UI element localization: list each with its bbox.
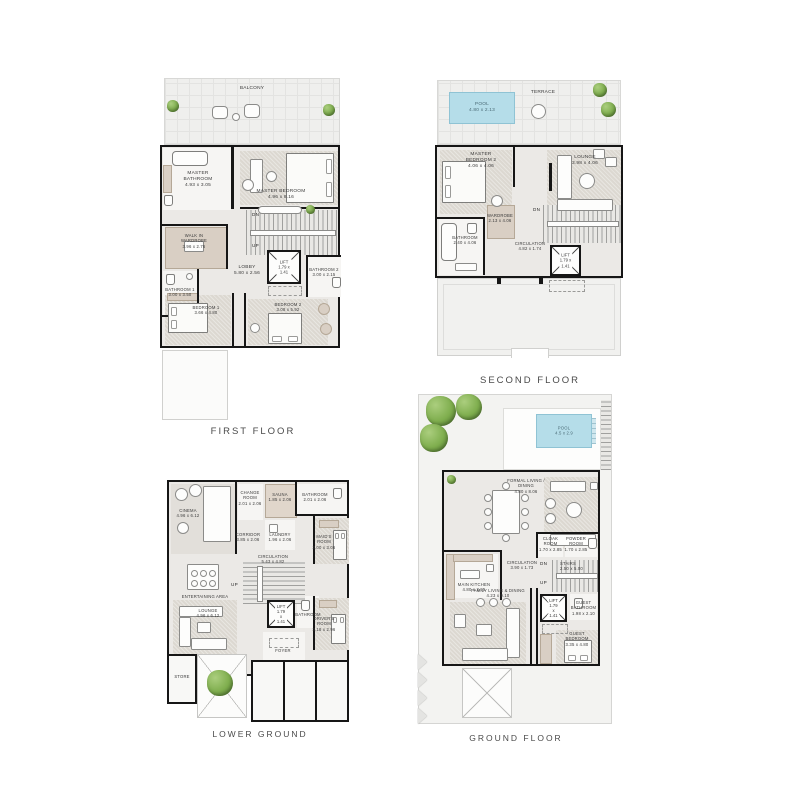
wall (244, 293, 246, 347)
chair (200, 570, 207, 577)
plan-first-floor: BALCONY MASTER BATHROOM 4.93 x 3.05 MAST… (160, 78, 346, 424)
balcony-label: BALCONY (210, 86, 294, 92)
chair (502, 598, 511, 607)
circulation-label: CIRCULATION 5.43 x 4.82 (253, 554, 293, 565)
console (590, 482, 598, 490)
wall-stub (497, 276, 501, 284)
chair (191, 580, 198, 587)
wall (437, 217, 485, 219)
wall (297, 514, 347, 516)
toilet (467, 223, 477, 234)
stairs-label: STAIRS 2.50 x 5.00 (560, 561, 590, 572)
stairs-dn-label: DN (252, 212, 259, 217)
wardrobe-strip (540, 634, 552, 664)
toilet (301, 600, 310, 611)
wardrobe-label: WARDROBE 2.13 x 4.06 (485, 213, 515, 224)
wall-stub (539, 276, 543, 284)
coffee-table (579, 173, 595, 189)
chair (489, 598, 498, 607)
roof-notch (511, 348, 549, 358)
chair (521, 522, 529, 530)
cloak-room-label: CLOAK ROOM 1.70 x 2.85 (539, 536, 562, 552)
corridor-label: CORRIDOR 3.85 x 2.06 (233, 532, 263, 543)
light-well (251, 660, 349, 722)
family-living-label: FAMILY LIVING & DINING 4.23 x 9.10 (466, 588, 530, 599)
hedge (418, 654, 427, 670)
circulation-label: CIRCULATION 3.90 x 1.73 (504, 560, 540, 571)
patio (462, 668, 512, 718)
wardrobe-strip (319, 600, 337, 608)
terrace-outline (162, 350, 228, 420)
pool: POOL 4.80 x 2.13 (449, 92, 515, 124)
guest-bedroom-label: GUEST BEDROOM 3.35 x 4.80 (560, 631, 594, 647)
chair (209, 570, 216, 577)
second-floor-title: SECOND FLOOR (435, 375, 625, 386)
round-table (531, 104, 546, 119)
mat (269, 638, 299, 648)
lift: LIFT 1.79 x 1.41 (267, 250, 301, 284)
sofa-seat (462, 648, 508, 661)
chair (484, 494, 492, 502)
master-bedroom2-label: MASTER BEDROOM 2 4.06 x 4.06 (459, 152, 503, 171)
wall (513, 147, 515, 187)
entry-mat (268, 286, 302, 296)
sofa-seat (191, 638, 227, 650)
lift-label: LIFT 1.79 x 1.41 (559, 252, 573, 269)
plan-ground-floor: POOL 4.5 x 2.9 FORMAL LIVING / DINING 4.… (418, 392, 614, 730)
terrace-label: TERRACE (521, 90, 565, 96)
stair-rail (257, 566, 263, 602)
toilet (166, 274, 175, 285)
toilet (588, 538, 597, 549)
stairs-dn-label: DN (540, 561, 547, 566)
cinema-chair (189, 484, 202, 497)
pool-label: POOL 4.5 x 2.9 (537, 426, 591, 437)
plan-lower-ground: CINEMA 4.96 x 6.12 CHANGE ROOM 2.01 x 2.… (167, 478, 353, 730)
wall (536, 532, 538, 558)
bathroom-label: BATHROOM 2.40 x 4.06 (449, 235, 481, 246)
stairs-up-label: UP (231, 582, 238, 587)
toilet (164, 195, 173, 206)
entertaining-label: ENTERTAINING AREA (177, 594, 233, 599)
floorplan-sheet: { "titles": { "first": "FIRST FLOOR", "s… (0, 0, 800, 800)
chair (476, 598, 485, 607)
cinema-label: CINEMA 4.96 x 6.12 (171, 508, 205, 519)
stair-rail (556, 573, 598, 579)
dining-table (492, 490, 520, 534)
lounge-chair (244, 104, 260, 118)
chair (209, 580, 216, 587)
wardrobe-strip (319, 520, 339, 528)
wall (530, 588, 532, 664)
sink (186, 273, 193, 280)
lift-label: LIFT 1.79 x 1.41 (277, 259, 292, 276)
stair-rail (547, 221, 619, 227)
first-floor-title: FIRST FLOOR (160, 426, 346, 437)
chair (521, 494, 529, 502)
second-floor-block: MASTER BEDROOM 2 4.06 x 4.06 LOUNGE 3.98… (435, 145, 623, 278)
hedge (418, 690, 427, 706)
courtyard-tree (207, 670, 233, 696)
maids-room-label: MAID'S ROOM 3.00 x 3.06 (311, 534, 337, 550)
wall (232, 293, 234, 347)
chair (484, 522, 492, 530)
plant-icon (593, 83, 607, 97)
sauna-label: SAUNA 1.85 x 2.06 (265, 492, 295, 503)
foyer-label: FOYER (269, 648, 297, 653)
chair (200, 580, 207, 587)
plant-icon (447, 475, 456, 484)
bedroom1-label: BEDROOM 1 3.66 x 4.80 (184, 305, 228, 316)
tree (426, 396, 456, 426)
hedge (418, 708, 427, 724)
round-table (177, 522, 189, 534)
stair-rail (250, 230, 336, 236)
master-bedroom-label: MASTER BEDROOM 4.96 x 8.16 (250, 189, 312, 201)
sofa (550, 481, 586, 492)
change-room-label: CHANGE ROOM 2.01 x 2.06 (237, 490, 263, 506)
bathroom1-label: BATHROOM 1 3.00 x 3.50 (164, 287, 196, 298)
wall (231, 147, 234, 209)
kitchen-island (460, 570, 480, 579)
tree (456, 394, 482, 420)
chair (502, 534, 510, 542)
bench (258, 206, 302, 214)
wardrobe-label: WALK IN WARDROBE 3.96 x 2.76 (174, 233, 214, 249)
ground-floor-block: FORMAL LIVING / DINING 4.80 x 8.06 MAIN … (442, 470, 600, 666)
lift: LIFT 1.79 x 1.41 (550, 245, 581, 276)
light-well-divider (283, 662, 285, 720)
wall (444, 550, 500, 552)
wall (536, 588, 538, 664)
formal-living-label: FORMAL LIVING / DINING 4.80 x 8.06 (502, 478, 550, 494)
toilet (333, 488, 342, 499)
vanity-counter (163, 165, 172, 193)
hedge (418, 672, 427, 688)
bathtub (172, 151, 208, 166)
tree (420, 424, 448, 452)
light-well-divider (315, 662, 317, 720)
ground-floor-title: GROUND FLOOR (418, 733, 614, 743)
master-bathroom-label: MASTER BATHROOM 4.93 x 3.05 (176, 171, 220, 190)
sofa-side (179, 617, 191, 647)
coffee-table (197, 622, 211, 633)
bathroom-top-label: BATHROOM 2.01 x 2.06 (299, 492, 331, 503)
appliance (486, 564, 494, 572)
wall (549, 163, 552, 191)
lift: LIFT 1.79 x 1.41 (267, 600, 295, 628)
plant-icon (601, 102, 616, 117)
armchair (454, 614, 466, 628)
pool-label: POOL 4.80 x 2.13 (450, 102, 514, 114)
wall (295, 482, 297, 516)
bed (268, 313, 302, 344)
cinema-chair (175, 488, 188, 501)
lift: LIFT 1.79 x 1.41 (540, 594, 567, 622)
lobby-label: LOBBY 5.80 x 2.56 (230, 265, 264, 277)
kitchen-counter (453, 554, 493, 562)
lower-ground-title: LOWER GROUND (167, 729, 353, 739)
armchair (491, 195, 503, 207)
wall (483, 217, 485, 275)
plant-icon (306, 205, 315, 214)
armchair (545, 513, 556, 524)
chair (521, 508, 529, 516)
stairs-up-label: UP (540, 580, 547, 585)
staircase (243, 562, 305, 604)
lounge-label: LOUNGE 4.96 x 6.12 (191, 608, 225, 619)
side-table (232, 113, 240, 121)
toilet (332, 277, 341, 288)
cinema-screen (203, 486, 231, 542)
pouf (250, 323, 260, 333)
roof-inner-line (443, 284, 615, 350)
lounge-chair (212, 106, 228, 119)
double-sink (455, 263, 477, 271)
wall (306, 255, 341, 257)
armchair (320, 323, 332, 335)
coffee-table (476, 624, 492, 636)
bathroom2-label: BATHROOM 2 3.00 x 2.15 (308, 267, 340, 278)
store-label: STORE (169, 674, 195, 679)
armchair (318, 303, 330, 315)
coffee-table (266, 171, 277, 182)
lift-mat (549, 280, 585, 292)
circulation-label: CIRCULATION 4.82 x 1.74 (511, 241, 549, 252)
coffee-table (566, 502, 582, 518)
powder-room-label: POWDER ROOM 1.70 x 2.85 (564, 536, 588, 552)
lift-label: LIFT 1.79 x 1.41 (275, 603, 287, 625)
wall (226, 224, 228, 269)
sofa-side (506, 608, 520, 658)
bench-sofa (557, 199, 613, 211)
stairs-up-label: UP (252, 243, 259, 248)
chair (484, 508, 492, 516)
laundry-label: LAUNDRY 1.96 x 2.06 (265, 532, 295, 543)
plan-second-floor: POOL 4.80 x 2.13 TERRACE MASTER BEDROOM … (435, 80, 625, 372)
lift-label: LIFT 1.79 x 1.41 (548, 597, 560, 619)
plant-icon (167, 100, 179, 112)
armchair (545, 498, 556, 509)
pool: POOL 4.5 x 2.9 (536, 414, 592, 448)
wall (162, 224, 228, 226)
lower-ground-block: CINEMA 4.96 x 6.12 CHANGE ROOM 2.01 x 2.… (167, 480, 349, 676)
drivers-room-label: DRIVER'S ROOM 3.18 x 2.96 (311, 616, 337, 632)
guest-bathroom-label: GUEST BATHROOM 1.98 x 2.10 (570, 600, 597, 616)
first-floor-block: MASTER BATHROOM 4.93 x 3.05 MASTER BEDRO… (160, 145, 340, 348)
garden-steps (601, 400, 611, 470)
plant-icon (323, 104, 335, 116)
chair (191, 570, 198, 577)
stairs-dn-label: DN (533, 207, 540, 212)
bedroom2-label: BEDROOM 2 3.08 x 5.92 (266, 302, 310, 313)
pool-ladder (592, 418, 596, 444)
lounge-label: LOUNGE 3.98 x 4.06 (563, 155, 607, 167)
